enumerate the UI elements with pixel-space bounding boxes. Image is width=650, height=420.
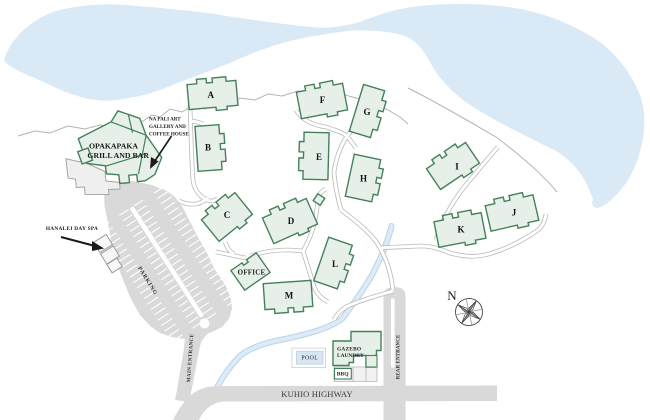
svg-text:C: C	[224, 210, 231, 220]
svg-text:REAR ENTRANCE: REAR ENTRANCE	[397, 334, 402, 379]
svg-text:J: J	[512, 208, 517, 218]
svg-text:GRILL AND BAR: GRILL AND BAR	[87, 151, 149, 160]
svg-text:F: F	[320, 95, 326, 105]
svg-text:I: I	[455, 162, 459, 172]
svg-text:GAZEBO: GAZEBO	[337, 347, 361, 353]
svg-text:D: D	[288, 216, 295, 226]
svg-text:A: A	[207, 90, 214, 100]
svg-text:BBQ: BBQ	[337, 372, 349, 378]
svg-text:N: N	[447, 288, 457, 303]
svg-text:GALLERY AND: GALLERY AND	[149, 124, 186, 130]
svg-text:COFFEE HOUSE: COFFEE HOUSE	[149, 132, 189, 138]
svg-text:M: M	[285, 291, 294, 301]
svg-text:K: K	[457, 225, 464, 235]
svg-text:HANALEI DAY SPA: HANALEI DAY SPA	[46, 226, 98, 232]
svg-text:OFFICE: OFFICE	[238, 269, 266, 277]
svg-text:KUHIO HIGHWAY: KUHIO HIGHWAY	[281, 389, 352, 399]
svg-text:NA PALI ART: NA PALI ART	[149, 117, 181, 123]
svg-text:H: H	[360, 174, 367, 184]
svg-text:G: G	[363, 107, 370, 117]
svg-text:POOL: POOL	[301, 356, 318, 362]
svg-text:B: B	[205, 143, 211, 153]
svg-text:L: L	[332, 259, 338, 269]
svg-text:LAUNDRY: LAUNDRY	[337, 353, 364, 359]
svg-text:OPAKAPAKA: OPAKAPAKA	[89, 142, 138, 151]
svg-text:E: E	[316, 152, 322, 162]
